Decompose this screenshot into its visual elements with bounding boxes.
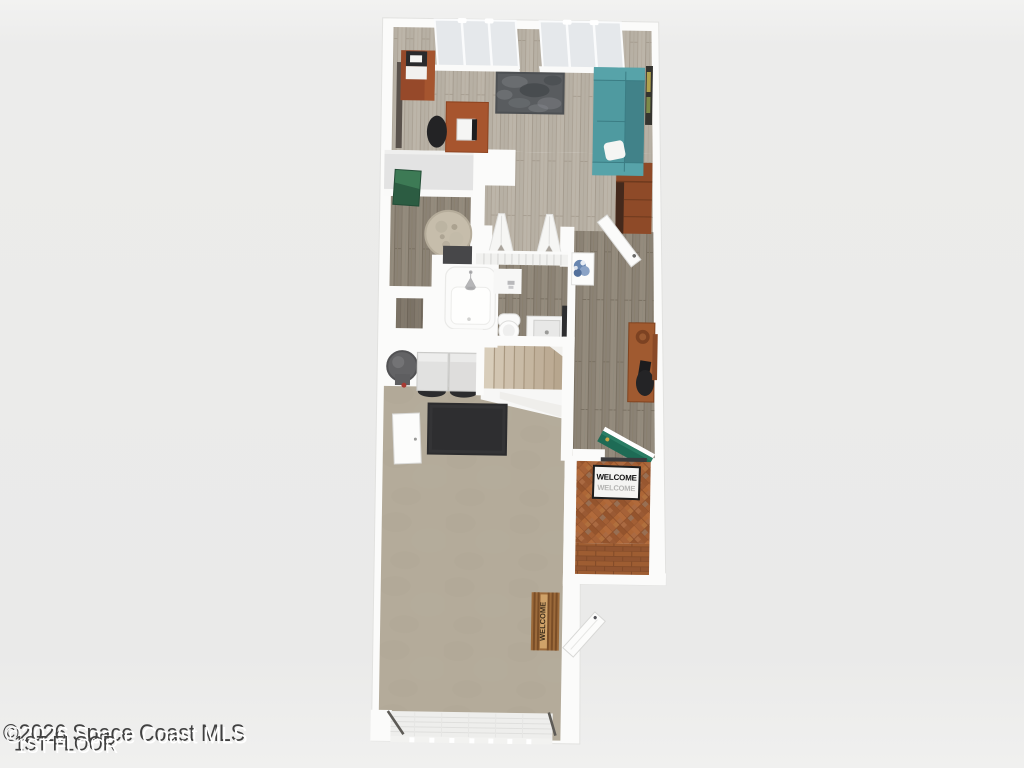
svg-text:1ST FLOOR: 1ST FLOOR [16,735,118,758]
svg-text:WELCOME: WELCOME [538,602,548,641]
svg-text:WELCOME: WELCOME [597,483,635,493]
svg-text:WELCOME: WELCOME [596,472,638,482]
